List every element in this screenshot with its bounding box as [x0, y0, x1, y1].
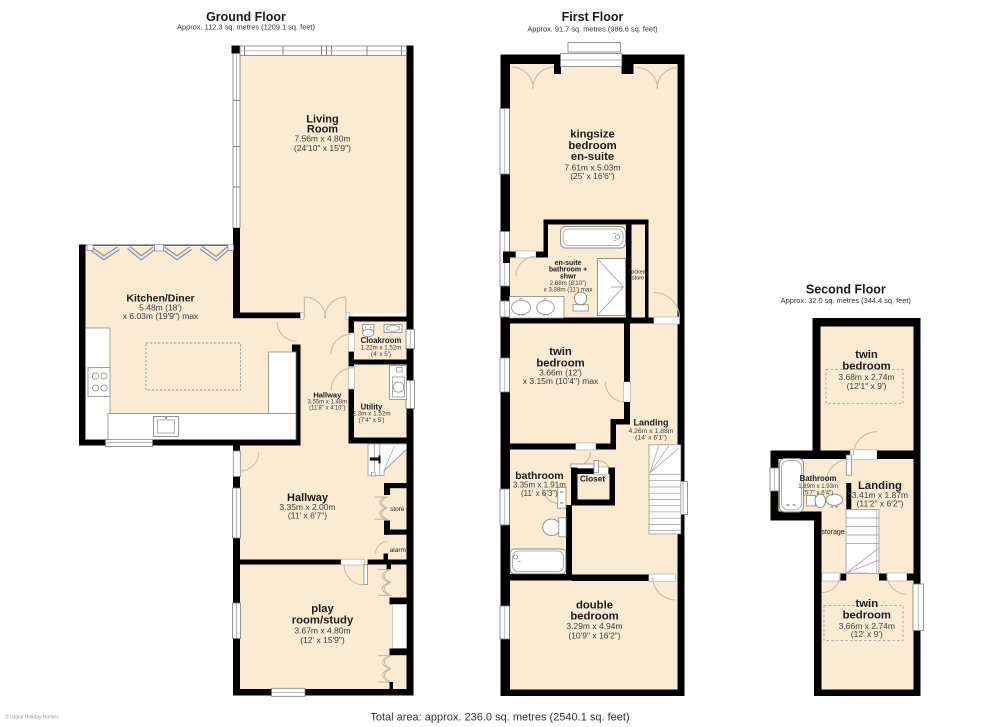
svg-text:(11'2" x 6'2"): (11'2" x 6'2") — [857, 499, 904, 509]
svg-text:(11'8" x 4'10"): (11'8" x 4'10") — [309, 406, 345, 412]
svg-text:Total area: approx. 236.0 sq.: Total area: approx. 236.0 sq. metres (25… — [370, 712, 629, 724]
svg-text:Closet: Closet — [580, 474, 606, 484]
svg-text:Second Floor: Second Floor — [806, 282, 886, 296]
svg-text:storage: storage — [821, 529, 844, 536]
svg-text:(24'10" x 15'9"): (24'10" x 15'9") — [294, 143, 351, 153]
svg-text:Bathroom: Bathroom — [800, 474, 837, 483]
svg-text:(14' x 6'1"): (14' x 6'1") — [635, 435, 667, 442]
svg-text:twin: twin — [856, 598, 879, 610]
svg-text:store: store — [390, 506, 405, 513]
svg-text:First Floor: First Floor — [562, 10, 624, 24]
svg-text:store: store — [632, 276, 644, 282]
svg-text:(25' x 16'6"): (25' x 16'6") — [570, 171, 615, 181]
svg-text:Approx. 32.0 sq. metres (344.4: Approx. 32.0 sq. metres (344.4 sq. feet) — [781, 296, 911, 305]
svg-text:twin: twin — [855, 349, 878, 361]
svg-text:bedroom: bedroom — [843, 610, 891, 622]
svg-text:1.69m x 1.93m: 1.69m x 1.93m — [798, 484, 838, 490]
svg-text:(12' x 15'9"): (12' x 15'9") — [300, 635, 345, 645]
svg-text:(11' x 6'3"): (11' x 6'3") — [521, 489, 558, 498]
svg-text:(7'4" x 5'): (7'4" x 5') — [359, 417, 385, 424]
svg-text:x 3.15m (10'4") max: x 3.15m (10'4") max — [523, 376, 599, 386]
svg-text:kingsize: kingsize — [570, 129, 615, 141]
svg-text:Approx. 112.3 sq. metres (1209: Approx. 112.3 sq. metres (1209.1 sq. fee… — [177, 23, 315, 32]
svg-text:© Island Holiday Homes: © Island Holiday Homes — [5, 714, 59, 721]
svg-text:Hallway: Hallway — [313, 390, 342, 399]
svg-text:en-suite: en-suite — [571, 151, 614, 163]
svg-text:bedroom: bedroom — [568, 140, 616, 152]
svg-text:play: play — [311, 603, 334, 615]
svg-text:7.56m x 4.80m: 7.56m x 4.80m — [294, 134, 350, 144]
svg-text:alarm: alarm — [390, 547, 406, 554]
svg-text:x 3.38m (11') max: x 3.38m (11') max — [544, 287, 594, 294]
svg-text:(12'1" x 9'): (12'1" x 9') — [847, 381, 887, 391]
svg-text:x 6.03m (19'9") max: x 6.03m (19'9") max — [123, 311, 199, 321]
svg-text:3.67m x 4.80m: 3.67m x 4.80m — [294, 626, 350, 636]
svg-text:(11' x 6'7"): (11' x 6'7") — [288, 510, 327, 520]
svg-text:Landing: Landing — [634, 418, 669, 428]
svg-text:bedroom: bedroom — [842, 361, 890, 373]
svg-text:(5'7" x 6'4"): (5'7" x 6'4") — [803, 490, 833, 496]
svg-text:(4' x 5'): (4' x 5') — [371, 351, 391, 358]
svg-text:Cloakroom: Cloakroom — [361, 336, 402, 345]
svg-text:3.29m x 4.94m: 3.29m x 4.94m — [566, 621, 622, 631]
svg-text:(10'9" x 16'2"): (10'9" x 16'2") — [568, 630, 620, 640]
svg-text:(12' x 9'): (12' x 9') — [851, 629, 883, 639]
svg-text:3.55m x 1.48m: 3.55m x 1.48m — [307, 399, 347, 405]
svg-text:Approx. 91.7 sq. metres (986.6: Approx. 91.7 sq. metres (986.6 sq. feet) — [527, 25, 657, 34]
